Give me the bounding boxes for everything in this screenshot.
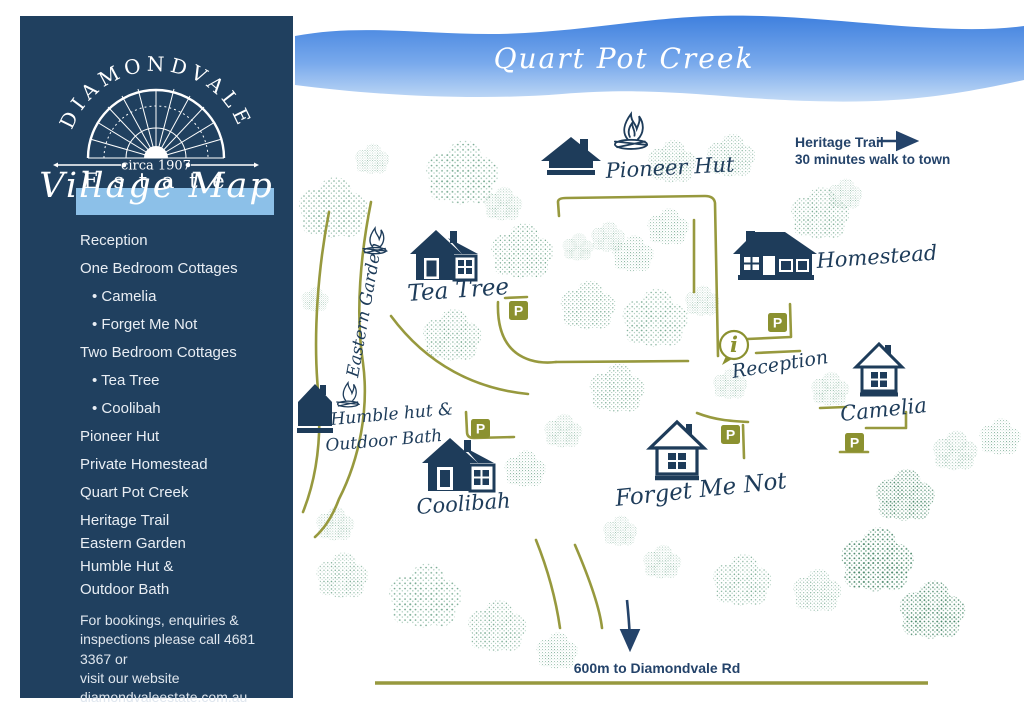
tree-icon [933,431,978,471]
tree-icon [317,552,369,598]
tree-icon [876,469,935,521]
path-to-road [536,540,602,628]
tree-icon [563,233,594,260]
eastern-garden-label: Eastern Garden [343,241,387,380]
camelia-cottage-icon [856,344,902,395]
tree-icon [355,144,390,175]
heritage-trail-sub-label: 30 minutes walk to town [795,152,950,167]
legend-item: Tea Tree [80,372,238,389]
svg-text:P: P [476,421,485,437]
estate-map: P P P P P i Pioneer Hut Tea Tree Homeste… [295,95,1024,707]
legend-item: Quart Pot Creek [80,484,238,501]
tree-icon [980,418,1021,455]
legend-item: One Bedroom Cottages [80,260,238,277]
pioneer-hut-label: Pioneer Hut [604,152,735,183]
road-distance-label: 600m to Diamondvale Rd [574,660,741,676]
creek-label: Quart Pot Creek [494,42,755,75]
tree-icon [648,208,689,245]
tree-icon [561,281,616,330]
svg-text:i: i [730,332,738,357]
legend-item: Forget Me Not [80,316,238,333]
parking-icon: P [471,419,490,438]
village-map-page: DIAMONDVALE circa 1907 E s t a t e Villa… [0,0,1024,724]
coolibah-label: Coolibah [416,488,512,519]
tree-icon [900,581,966,639]
parking-icon: P [845,433,864,452]
legend-item: Outdoor Bath [80,581,238,598]
humble-hut-label-2: Outdoor Bath [325,426,443,456]
legend-item: Humble Hut & [80,558,238,575]
tree-icon [423,309,482,361]
legend-item: Coolibah [80,400,238,417]
camelia-label: Camelia [839,393,928,426]
svg-text:P: P [726,427,735,443]
forget-me-not-cottage-icon [650,422,704,478]
path-segment [556,361,688,362]
tree-icon [537,632,578,669]
tree-icon [468,600,527,652]
road-arrow [627,600,630,647]
tree-icon [426,140,498,204]
tree-icon [299,177,368,238]
tree-icon [389,563,461,627]
humble-hut-icon [297,384,333,433]
tree-icon [301,287,329,311]
svg-text:P: P [773,315,782,331]
tree-icon [811,372,849,406]
tree-icon [685,286,720,317]
tree-icon [590,364,645,413]
tree-icon [828,179,863,210]
campfire-icon [615,114,647,149]
tree-icon [841,527,913,591]
parking-icon: P [768,313,787,332]
tea-tree-cottage-icon [410,230,478,280]
tree-icon [491,223,553,278]
legend-item: Eastern Garden [80,535,238,552]
tree-icon [793,569,841,612]
lace-fan-icon [88,89,224,158]
tree-icon [505,450,546,487]
tree-icon [544,414,582,448]
tree-icon [713,554,772,606]
tree-icon [603,516,638,547]
legend-item: Reception [80,232,238,249]
pioneer-hut-icon [541,137,601,175]
legend-item: Private Homestead [80,456,238,473]
sidebar: DIAMONDVALE circa 1907 E s t a t e Villa… [20,16,293,698]
legend-item: Camelia [80,288,238,305]
homestead-label: Homestead [815,241,938,273]
tree-icon [623,289,689,347]
parking-icon: P [721,425,740,444]
svg-text:P: P [850,435,859,451]
path-eastern-garden-west [303,212,329,512]
homestead-icon [733,231,817,280]
tree-icon [643,545,681,579]
svg-text:P: P [514,303,523,319]
legend-item: Two Bedroom Cottages [80,344,238,361]
legend-item: Pioneer Hut [80,428,238,445]
heritage-trail-label: Heritage Trail [795,134,884,150]
forget-me-not-label: Forget Me Not [613,468,789,512]
booking-info-text: For bookings, enquiries & inspections pl… [80,611,280,708]
village-map-title: Village Map [20,166,293,206]
parking-icon: P [509,301,528,320]
legend-item: Heritage Trail [80,512,238,529]
legend-list: Reception One Bedroom Cottages Camelia F… [80,232,238,604]
tree-icon [316,507,354,541]
campfire-icon [337,383,359,407]
